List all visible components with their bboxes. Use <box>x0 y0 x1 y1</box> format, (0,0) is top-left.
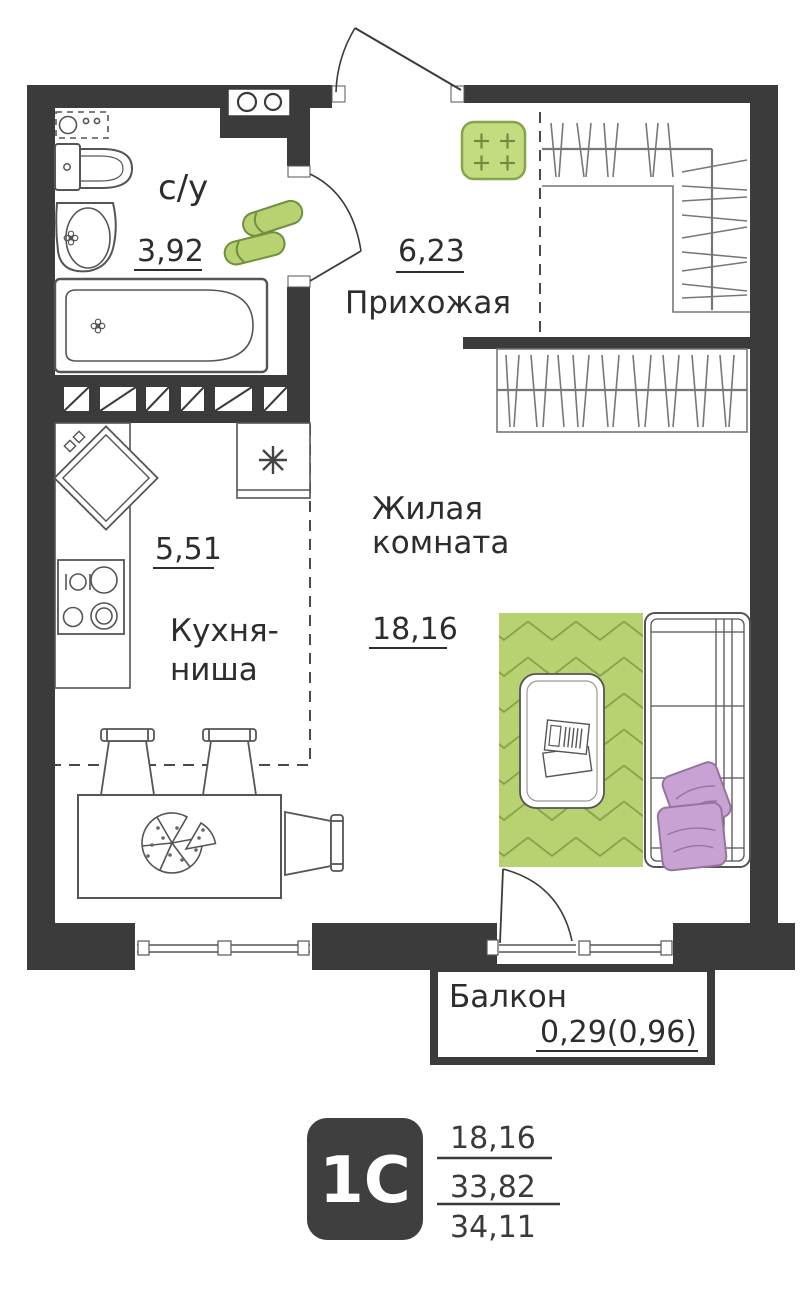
bathroom-door <box>288 166 361 287</box>
bathroom-area: 3,92 <box>137 234 204 269</box>
bathroom-label: с/у <box>158 168 208 208</box>
legend-living-area: 18,16 <box>450 1121 536 1156</box>
balcony-door-opening <box>487 869 578 970</box>
appliance-spot <box>237 423 310 498</box>
wall-bathroom-right-lower <box>287 287 310 375</box>
type-code: 1С <box>319 1144 411 1218</box>
kitchen-label-line2: ниша <box>170 652 258 688</box>
wall-left <box>27 85 55 970</box>
dining-chair <box>101 729 154 795</box>
living-area: 18,16 <box>372 612 458 647</box>
wall-hallway-living <box>463 337 750 349</box>
balcony-label: Балкон <box>449 979 567 1015</box>
entrance-door-leaf <box>355 28 461 90</box>
balcony: Балкон 0,29(0,96) <box>434 968 711 1061</box>
hanger-lines-right <box>682 160 747 298</box>
remote-device <box>544 720 589 754</box>
kitchen-area: 5,51 <box>155 532 222 567</box>
entrance-door <box>332 28 464 102</box>
slippers-icon <box>222 198 305 267</box>
living-label-line2: комната <box>372 525 509 561</box>
room-labels: с/у 3,92 6,23 Прихожая Жилая комната 18,… <box>134 168 511 688</box>
balcony-area: 0,29(0,96) <box>540 1015 697 1050</box>
floor-plan: Балкон 0,29(0,96) <box>0 0 800 1296</box>
bathroom-door-swing <box>310 174 361 251</box>
legend-total-area: 34,11 <box>450 1210 536 1245</box>
hallway-label: Прихожая <box>345 285 511 321</box>
bathtub <box>55 279 267 372</box>
floor-plan-page: Балкон 0,29(0,96) <box>0 0 800 1296</box>
plan-legend: 1С 18,16 33,82 34,11 <box>307 1118 560 1245</box>
living-label-line1: Жилая <box>372 491 483 527</box>
hallway-area: 6,23 <box>398 234 465 269</box>
bathroom-sink <box>56 203 116 271</box>
kitchen-label-line1: Кухня- <box>170 613 279 649</box>
legend-area-without-balcony: 33,82 <box>450 1170 536 1205</box>
meter-box <box>228 89 290 116</box>
window-kitchen <box>135 923 312 970</box>
entrance-door-swing <box>336 28 355 92</box>
stove <box>58 560 124 634</box>
washing-machine <box>56 112 108 138</box>
asterisk-icon <box>259 446 287 474</box>
coffee-table <box>520 674 604 808</box>
hall-wardrobe <box>542 123 750 312</box>
living-wardrobe <box>497 349 747 432</box>
dining-chair <box>285 812 343 875</box>
bathroom-door-leaf <box>310 251 361 281</box>
toilet <box>55 144 132 190</box>
dining-table <box>78 795 281 898</box>
wall-top-right <box>464 85 778 103</box>
entry-mat <box>462 122 525 179</box>
dining-chair <box>203 729 256 795</box>
wall-right <box>750 85 778 970</box>
window-living <box>578 923 673 970</box>
pillow <box>657 802 727 871</box>
